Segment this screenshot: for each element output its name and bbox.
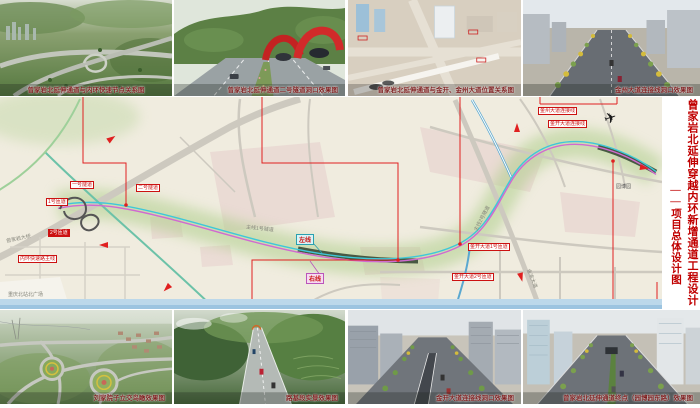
map-label-right-line: 右线 — [306, 273, 324, 284]
render-jinzhou-avenue: 金州大道连接线洞口效果图 — [523, 0, 700, 96]
red-arch-tunnel-illustration — [174, 0, 345, 96]
caption-top-4: 金州大道连接线洞口效果图 — [523, 87, 700, 95]
map-label-jinkai-link: 金开大道连接线 — [548, 120, 587, 128]
plan-map-illustration — [0, 97, 662, 309]
roundabout-interchange-illustration — [0, 310, 172, 404]
caption-bottom-1: 刘家院子立交鸟瞰效果图 — [0, 395, 172, 403]
map-label-ramp2: 2号匝道 — [48, 229, 70, 237]
glass-tower — [527, 320, 550, 385]
map-text-yuanboyuan: 园博园 — [616, 183, 631, 190]
render-terminal-yuanboyuan: 曾家岩北延伸通道终点（园博园东路）效果图 — [523, 310, 700, 404]
divider — [0, 96, 700, 97]
caption-top-1: 曾家岩北延伸通道与内环快速节点关系图 — [0, 87, 172, 95]
urban-avenue-ramp-illustration — [348, 310, 521, 404]
map-label-left-line: 左线 — [296, 234, 314, 245]
render-jinkai-link-portal: 金开大道连接线洞口效果图 — [348, 310, 521, 404]
render-jinkai-jinzhou-relation: 曾家岩北延伸通道与金开、金州大道位置关系图 — [348, 0, 521, 96]
render-roadbed-section: 路基段实景效果图 — [174, 310, 345, 404]
interchange-aerial-illustration — [0, 0, 172, 96]
map-label-inner-ring: 内环快速路主线 — [18, 255, 57, 263]
map-label-jinzhou-link: 金州大道连接线 — [538, 107, 577, 115]
map-label-tunnel2: 二号隧道 — [136, 184, 160, 192]
highway-mountains-illustration — [174, 310, 345, 404]
intersection-model-illustration — [348, 0, 521, 96]
caption-top-2: 曾家岩北延伸通道二号隧道洞口效果图 — [174, 87, 345, 95]
project-title-sub: ——项目总体设计图 — [668, 97, 684, 309]
plan-map: 一号隧道 二号隧道 1号匝道 2号匝道 内环快速路主线 金州大道连接线 金开大道… — [0, 97, 662, 309]
avenue-yellow-trees-illustration — [523, 0, 700, 96]
render-interchange-aerial: 曾家岩北延伸通道与内环快速节点关系图 — [0, 0, 172, 96]
caption-top-3: 曾家岩北延伸通道与金开、金州大道位置关系图 — [348, 87, 521, 95]
map-label-ramp1: 1号匝道 — [46, 198, 68, 206]
map-label-jinkai-ramp1: 金开大道1号匝道 — [468, 243, 510, 251]
map-text-north-station: 重庆北站北广场 — [8, 291, 43, 298]
design-sheet: 曾家岩北延伸通道与内环快速节点关系图 曾家岩北延伸通道二号隧道洞口效果图 — [0, 0, 700, 408]
render-liujiayuanzi-interchange: 刘家院子立交鸟瞰效果图 — [0, 310, 172, 404]
project-title-main: 曾家岩北延伸穿越内环新增通道工程设计 — [684, 97, 700, 309]
render-tunnel2-portal: 曾家岩北延伸通道二号隧道洞口效果图 — [174, 0, 345, 96]
map-label-tunnel1: 一号隧道 — [70, 181, 94, 189]
caption-bottom-3: 金开大道连接线洞口效果图 — [348, 395, 521, 403]
bottom-margin — [0, 404, 700, 408]
map-label-jinkai-ramp2: 金开大道2号匝道 — [452, 273, 494, 281]
caption-bottom-4: 曾家岩北延伸通道终点（园博园东路）效果图 — [523, 395, 700, 403]
project-title: 曾家岩北延伸穿越内环新增通道工程设计 ——项目总体设计图 — [662, 97, 700, 309]
tunnel-portal — [605, 347, 617, 354]
terminal-avenue-illustration — [523, 310, 700, 404]
caption-bottom-2: 路基段实景效果图 — [174, 395, 345, 403]
